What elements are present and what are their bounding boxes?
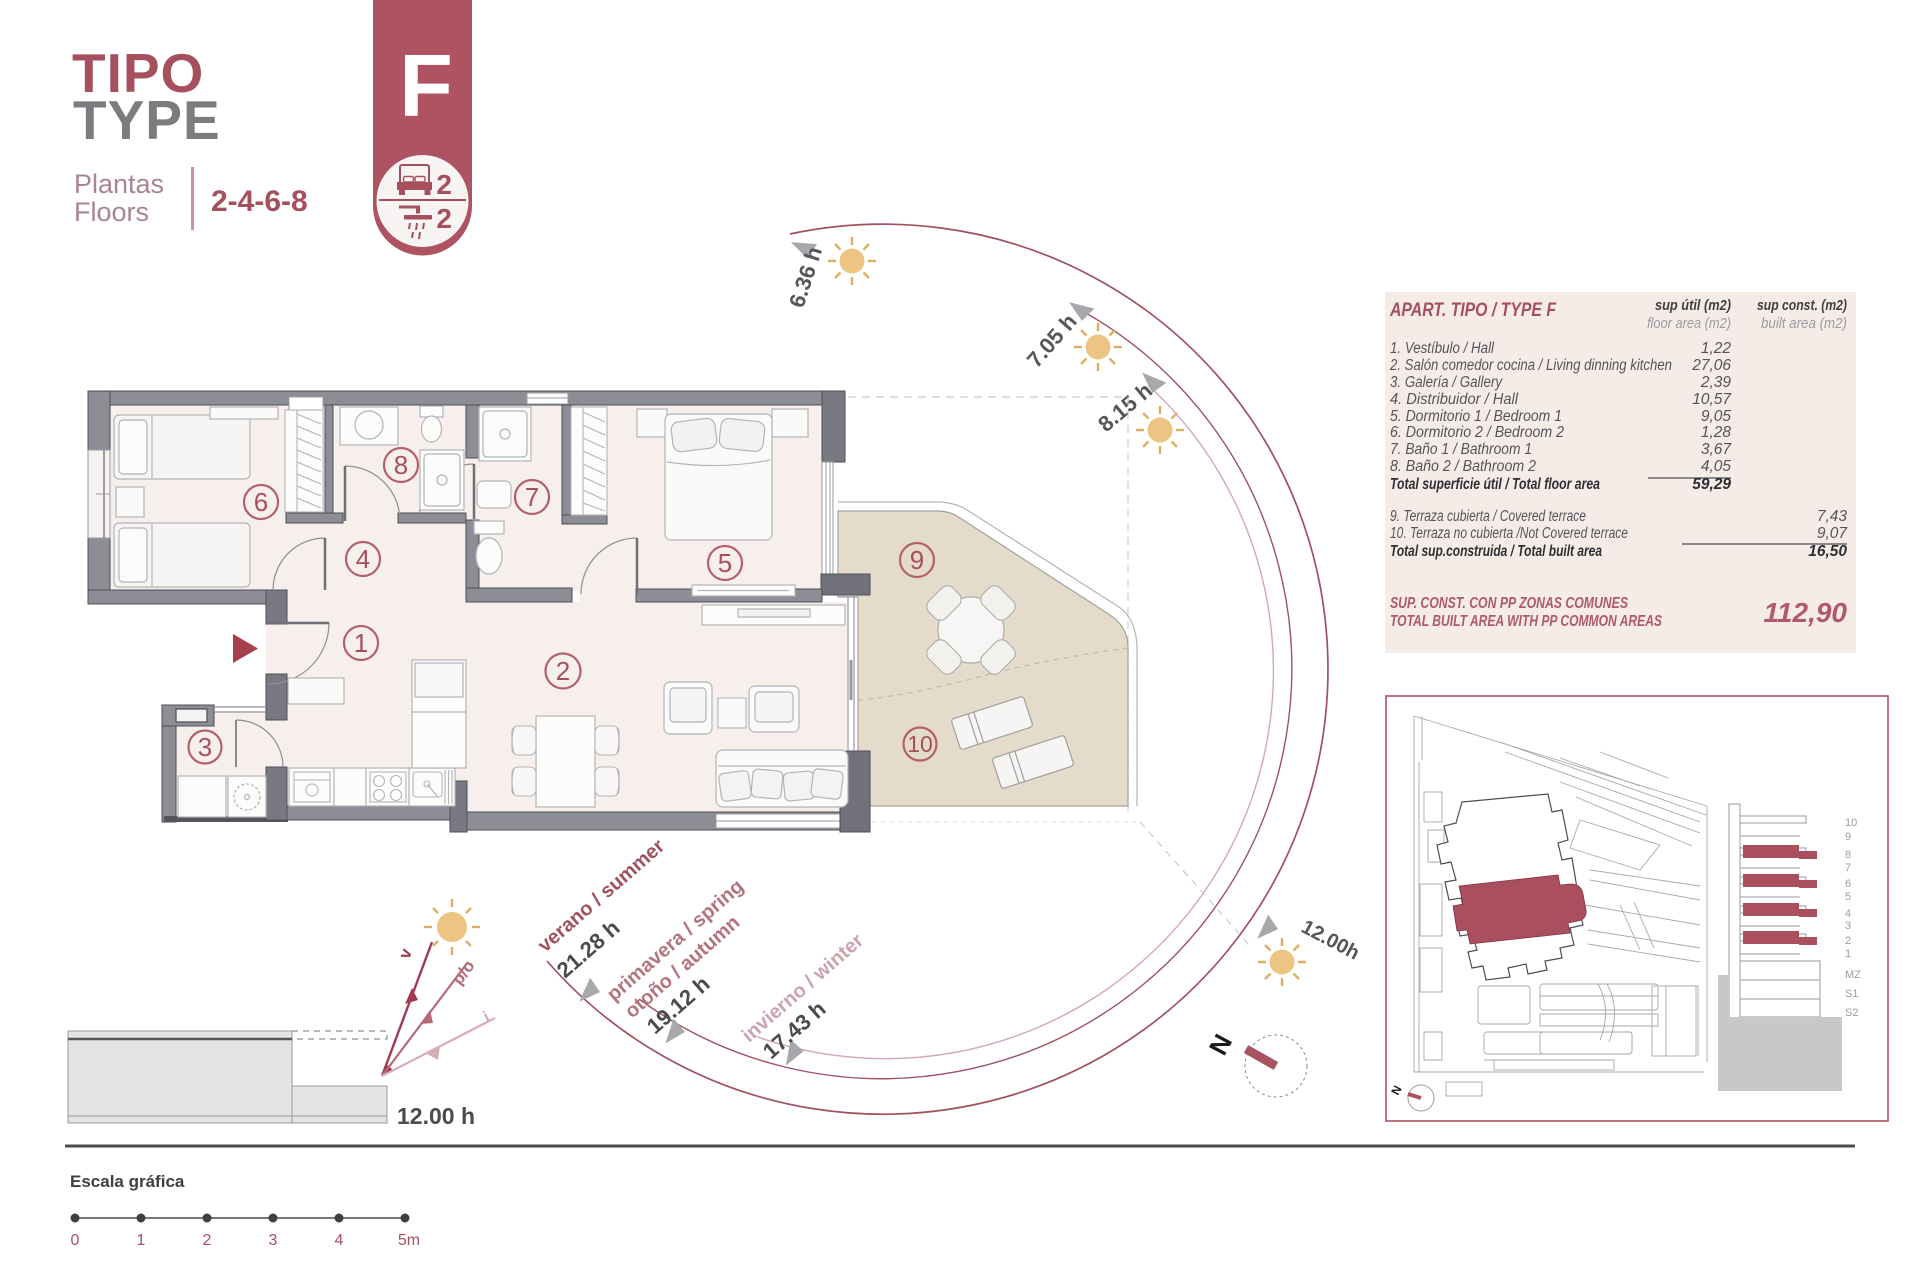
svg-text:5: 5 [718, 548, 732, 578]
svg-text:APART. TIPO / TYPE F: APART. TIPO / TYPE F [1389, 300, 1557, 321]
svg-text:7: 7 [525, 482, 539, 512]
svg-text:6. Dormitorio 2 / Bedroom 2: 6. Dormitorio 2 / Bedroom 2 [1390, 424, 1564, 441]
svg-text:2: 2 [436, 169, 452, 200]
svg-text:4: 4 [1845, 908, 1851, 920]
svg-text:16,50: 16,50 [1808, 543, 1847, 560]
svg-text:Plantas: Plantas [74, 169, 164, 199]
svg-text:2-4-6-8: 2-4-6-8 [211, 185, 308, 218]
svg-text:8. Baño 2 / Bathroom 2: 8. Baño 2 / Bathroom 2 [1390, 458, 1536, 475]
svg-text:8: 8 [1845, 849, 1851, 861]
svg-text:112,90: 112,90 [1763, 597, 1847, 628]
svg-text:9: 9 [1845, 831, 1851, 843]
svg-text:5m: 5m [398, 1232, 420, 1249]
svg-text:10: 10 [1845, 817, 1857, 829]
svg-text:3: 3 [198, 732, 212, 762]
svg-text:4: 4 [335, 1232, 344, 1249]
svg-text:S2: S2 [1845, 1007, 1858, 1019]
svg-text:10: 10 [907, 731, 933, 757]
svg-text:TOTAL BUILT AREA WITH PP COMMO: TOTAL BUILT AREA WITH PP COMMON AREAS [1390, 613, 1663, 630]
svg-text:sup const. (m2): sup const. (m2) [1757, 297, 1847, 314]
svg-text:1: 1 [137, 1232, 146, 1249]
svg-text:sup útil (m2): sup útil (m2) [1655, 297, 1731, 314]
svg-text:2. Salón comedor cocina / Livi: 2. Salón comedor cocina / Living dinning… [1389, 357, 1672, 374]
svg-text:Escala gráfica: Escala gráfica [70, 1172, 185, 1191]
svg-text:SUP. CONST. CON PP ZONAS COMUN: SUP. CONST. CON PP ZONAS COMUNES [1390, 595, 1629, 612]
svg-text:4. Distribuidor / Hall: 4. Distribuidor / Hall [1390, 391, 1519, 408]
svg-text:10. Terraza no cubierta /Not C: 10. Terraza no cubierta /Not Covered ter… [1390, 525, 1628, 542]
svg-text:2: 2 [203, 1232, 212, 1249]
svg-text:2: 2 [1845, 935, 1851, 947]
svg-text:6: 6 [1845, 878, 1851, 890]
svg-text:7: 7 [1845, 862, 1851, 874]
svg-text:1,28: 1,28 [1701, 424, 1732, 441]
svg-text:7. Baño 1 / Bathroom 1: 7. Baño 1 / Bathroom 1 [1390, 441, 1532, 458]
svg-text:12.00 h: 12.00 h [397, 1103, 475, 1129]
svg-text:27,06: 27,06 [1691, 357, 1731, 374]
svg-text:S1: S1 [1845, 988, 1858, 1000]
svg-text:3,67: 3,67 [1701, 441, 1733, 458]
svg-text:5: 5 [1845, 891, 1851, 903]
svg-text:1,22: 1,22 [1701, 340, 1732, 357]
svg-text:1: 1 [354, 628, 368, 658]
svg-text:MZ: MZ [1845, 969, 1861, 981]
svg-text:3. Galería / Gallery: 3. Galería / Gallery [1390, 374, 1503, 391]
svg-text:Floors: Floors [74, 197, 149, 227]
svg-text:TYPE: TYPE [73, 89, 221, 151]
svg-text:9,05: 9,05 [1701, 408, 1732, 425]
svg-text:3: 3 [1845, 920, 1851, 932]
svg-text:3: 3 [269, 1232, 278, 1249]
svg-text:1: 1 [1845, 948, 1851, 960]
svg-text:10,57: 10,57 [1692, 391, 1732, 408]
svg-text:F: F [399, 36, 453, 135]
svg-text:1. Vestíbulo / Hall: 1. Vestíbulo / Hall [1390, 340, 1494, 357]
svg-text:built area (m2): built area (m2) [1761, 315, 1847, 332]
svg-text:5. Dormitorio 1 / Bedroom 1: 5. Dormitorio 1 / Bedroom 1 [1390, 408, 1562, 425]
svg-text:9: 9 [910, 545, 924, 575]
svg-text:2: 2 [436, 203, 452, 234]
svg-text:9,07: 9,07 [1817, 525, 1849, 542]
svg-text:0: 0 [71, 1232, 80, 1249]
svg-text:4: 4 [356, 544, 370, 574]
svg-text:6: 6 [254, 487, 268, 517]
svg-text:7,43: 7,43 [1817, 508, 1848, 525]
svg-text:8: 8 [394, 450, 408, 480]
svg-text:Total superficie útil / Total: Total superficie útil / Total floor area [1390, 476, 1600, 493]
svg-text:9. Terraza cubierta / Covered: 9. Terraza cubierta / Covered terrace [1390, 508, 1586, 525]
svg-text:2: 2 [556, 656, 570, 686]
svg-text:Total sup.construida / Total b: Total sup.construida / Total built area [1390, 543, 1602, 560]
svg-text:59,29: 59,29 [1692, 476, 1731, 493]
svg-text:floor area (m2): floor area (m2) [1647, 315, 1731, 332]
svg-text:4,05: 4,05 [1701, 458, 1732, 475]
svg-text:2,39: 2,39 [1700, 374, 1732, 391]
